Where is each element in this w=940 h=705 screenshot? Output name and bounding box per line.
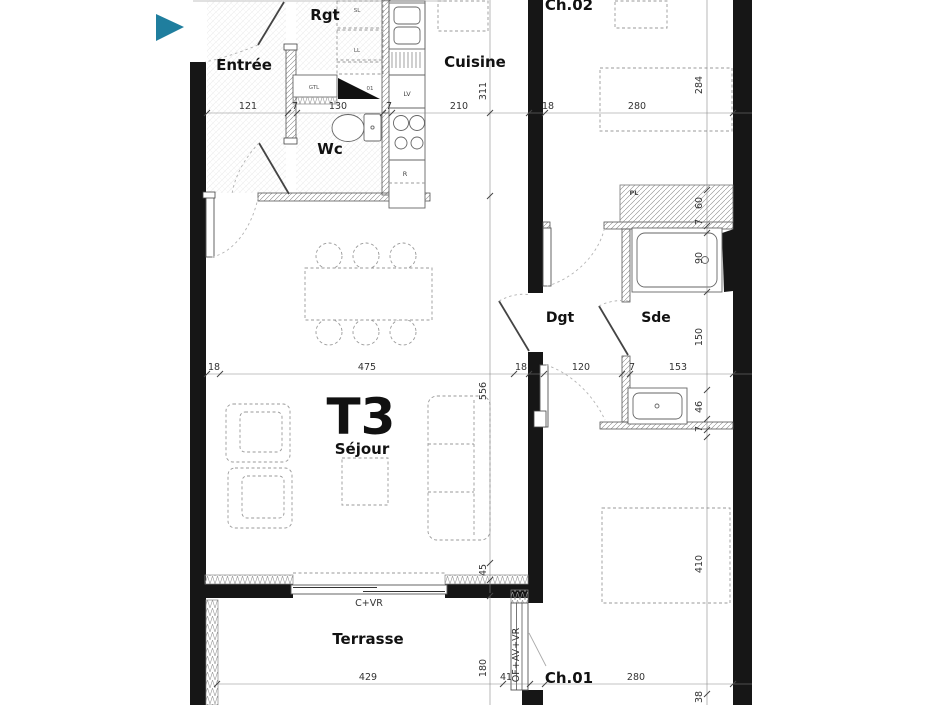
dgt-door-leaf xyxy=(499,301,529,351)
dim-mid-3: 120 xyxy=(572,362,590,373)
sde-fittings xyxy=(628,228,722,424)
dim-mid-1: 475 xyxy=(358,362,376,373)
dim-left-2: 45 xyxy=(478,564,489,576)
shower-wall-return xyxy=(722,227,742,292)
dim-right-8: 38 xyxy=(694,691,705,703)
dim-top-6: 280 xyxy=(628,101,646,112)
sde-door-leaf xyxy=(599,306,628,355)
dim-right-0: 284 xyxy=(694,76,705,94)
armchairs xyxy=(226,404,292,528)
entry-door-triangle xyxy=(338,78,380,99)
dim-left-3: 180 xyxy=(478,659,489,677)
dim-top-1: 7 xyxy=(292,101,298,112)
dim-top-4: 210 xyxy=(450,101,468,112)
window-sejour xyxy=(291,585,447,594)
room-label-sde: Sde xyxy=(641,310,671,326)
play-icon[interactable] xyxy=(156,14,184,41)
dim-top-5: 18 xyxy=(542,101,554,112)
dim-left-1: 556 xyxy=(478,382,489,400)
dim-right-7: 410 xyxy=(694,555,705,573)
dim-right-1: 60 xyxy=(694,197,705,209)
dim-bottom-0: 429 xyxy=(359,672,377,683)
dim-right-6: 7 xyxy=(694,426,705,432)
dim-mid-5: 153 xyxy=(669,362,687,373)
dim-right-3: 90 xyxy=(694,252,705,264)
dim-top-2: 130 xyxy=(329,101,347,112)
room-label-ch02: Ch.02 xyxy=(545,0,593,14)
dim-right-5: 46 xyxy=(694,401,705,413)
door-leaf-sejour xyxy=(206,196,214,257)
dim-bottom-2: 280 xyxy=(627,672,645,683)
floorplan-screenshot: 121 7 130 7 210 18 280 18 475 18 120 7 1… xyxy=(0,0,940,705)
dim-top-0: 121 xyxy=(239,101,257,112)
room-label-rgt: Rgt xyxy=(310,6,339,24)
room-label-sejour: Séjour xyxy=(335,440,390,458)
dim-mid-4: 7 xyxy=(629,362,635,373)
toilet-tank xyxy=(364,114,381,141)
dim-left-0: 311 xyxy=(478,82,489,100)
room-label-cuisine: Cuisine xyxy=(444,53,506,71)
sofa xyxy=(428,396,490,540)
room-label-entree: Entrée xyxy=(216,56,272,74)
bed-ch01 xyxy=(602,508,730,603)
window-sejour-label: C+VR xyxy=(355,598,383,609)
gtl-label: GTL xyxy=(309,85,320,91)
dishwasher-label: LV xyxy=(403,90,411,98)
dim-mid-0: 18 xyxy=(208,362,220,373)
coffee-table xyxy=(342,458,388,505)
closet-label: PL xyxy=(630,189,639,197)
dining-table xyxy=(305,268,432,320)
window-ch01-label: OF+AV+VR xyxy=(511,627,522,682)
dim-mid-2: 18 xyxy=(515,362,527,373)
terrace-left-wall xyxy=(206,600,218,705)
room-label-ch01: Ch.01 xyxy=(545,669,593,687)
ch02-door-leaf xyxy=(543,228,551,286)
dryer-label: SL xyxy=(354,8,361,14)
dining-set xyxy=(305,243,432,345)
floor-plan: 121 7 130 7 210 18 280 18 475 18 120 7 1… xyxy=(0,0,940,705)
dim-top-3: 7 xyxy=(386,101,392,112)
unit-type-label: T3 xyxy=(327,388,396,446)
room-label-wc: Wc xyxy=(317,140,342,158)
room-label-dgt: Dgt xyxy=(546,310,575,326)
dim-right-4: 150 xyxy=(694,328,705,346)
room-label-terrasse: Terrasse xyxy=(332,630,403,648)
door-number-label: 01 xyxy=(367,86,374,92)
washer-label: LL xyxy=(354,48,361,54)
toilet-bowl xyxy=(332,115,364,142)
dim-right-2: 7 xyxy=(694,219,705,225)
fridge-label: R xyxy=(403,170,408,178)
bed-ch02 xyxy=(600,68,732,131)
wc-fittings xyxy=(332,114,381,142)
